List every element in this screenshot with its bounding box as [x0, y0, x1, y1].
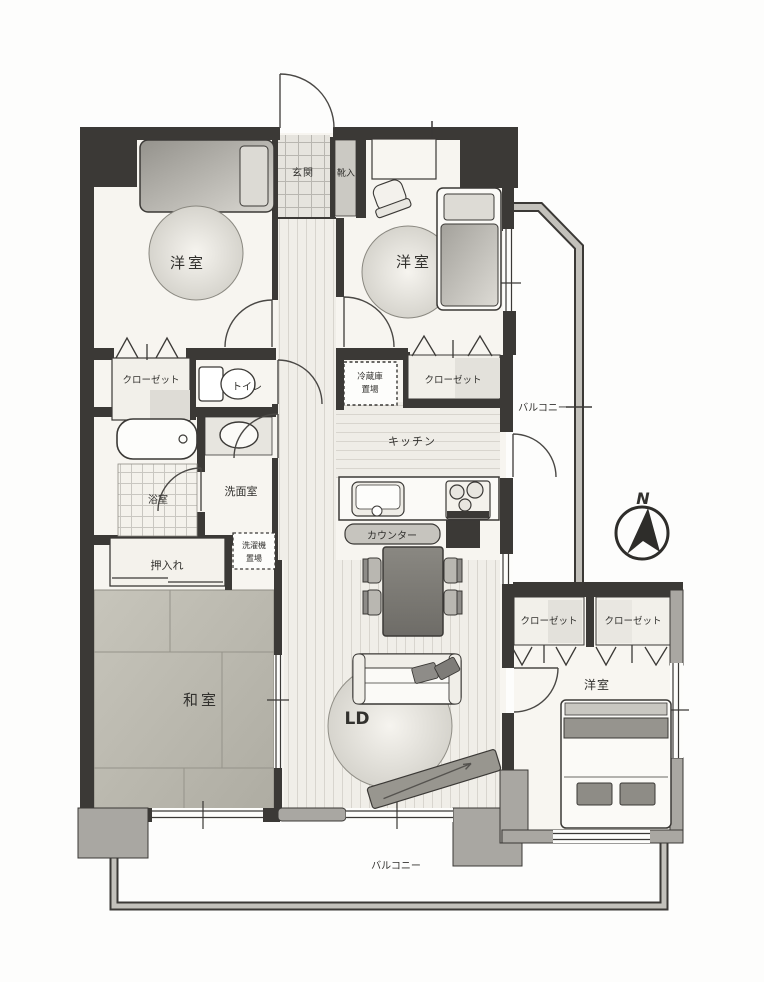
label-entrance: 玄関: [292, 166, 314, 179]
label-shoe-cabinet: 靴入: [337, 167, 355, 179]
label-balcony-east: バルコニー: [518, 402, 568, 414]
pillow: [577, 783, 612, 805]
pillar-sw: [78, 808, 148, 858]
bathtub: [117, 419, 197, 459]
label-laundry-line2: 置場: [246, 553, 262, 563]
terrace-step: [278, 808, 346, 821]
compass: N: [616, 489, 668, 559]
label-kitchen: キッチン: [388, 435, 436, 448]
label-bedroom-se: 洋室: [584, 677, 610, 692]
laundry-space: [233, 533, 275, 569]
bed-nw: [140, 140, 274, 212]
balcony-east: [513, 207, 592, 585]
label-toilet: トイレ: [232, 382, 262, 393]
label-fridge-line1: 冷蔵庫: [357, 371, 383, 382]
floorplan-drawing: N 玄関 靴入 洋室 洋室 クローゼット トイレ 冷蔵庫 置場 クローゼット バ…: [0, 0, 764, 982]
bedroom-se-wall-e-top: [670, 590, 683, 665]
floorplan-page: N 玄関 靴入 洋室 洋室 クローゼット トイレ 冷蔵庫 置場 クローゼット バ…: [0, 0, 764, 982]
label-oshiire: 押入れ: [151, 558, 184, 572]
label-fridge-line2: 置場: [361, 384, 379, 395]
stove: [446, 481, 490, 519]
bed-se: [561, 700, 671, 828]
rug-nw: [149, 206, 243, 300]
door-balcony-east: [513, 434, 556, 477]
washbasin: [205, 417, 272, 455]
toilet-tank: [199, 367, 223, 401]
label-bathroom: 浴室: [148, 493, 168, 506]
label-living-dining: LD: [345, 709, 370, 729]
pillow: [620, 783, 655, 805]
balcony-south: [114, 843, 664, 906]
kitchen-sink: [352, 482, 404, 516]
entrance-door: [280, 74, 334, 128]
label-closet-se-right: クローゼット: [604, 615, 661, 627]
compass-north-label: N: [636, 489, 650, 508]
hallway-floor: [278, 218, 336, 560]
label-closet-north: クローゼット: [424, 374, 481, 386]
bed-ne: [437, 188, 501, 310]
label-bedroom-nw: 洋室: [170, 254, 206, 272]
blanket-band: [564, 718, 668, 738]
pillow: [444, 194, 494, 220]
label-closet-se-left: クローゼット: [520, 615, 577, 627]
label-counter: カウンター: [367, 530, 417, 542]
label-bedroom-ne: 洋室: [396, 253, 432, 271]
pillow: [240, 146, 268, 206]
fridge-space: [344, 362, 397, 405]
window-bedroom-se-south: [553, 830, 650, 843]
label-japanese-room: 和室: [183, 691, 219, 709]
label-laundry-line1: 洗濯機: [242, 540, 266, 550]
sofa: [353, 654, 461, 704]
label-closet-west: クローゼット: [122, 374, 179, 386]
label-balcony-south: バルコニー: [371, 860, 421, 872]
dining-table: [383, 547, 443, 636]
label-washroom: 洗面室: [225, 484, 258, 498]
window-ld-east: [500, 554, 513, 584]
north-arrow-icon: [627, 508, 660, 554]
